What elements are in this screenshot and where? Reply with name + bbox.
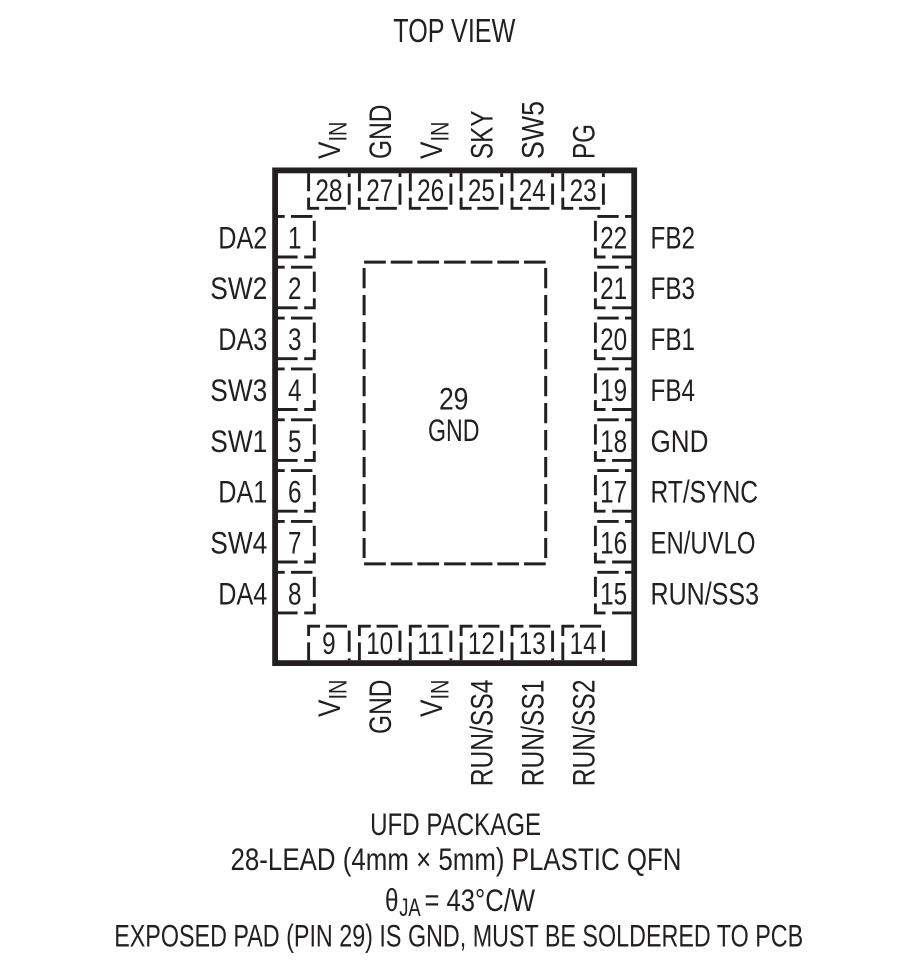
svg-text:SW2: SW2 (210, 270, 267, 306)
svg-text:13: 13 (519, 625, 546, 661)
svg-text:12: 12 (468, 625, 495, 661)
svg-text:SW1: SW1 (210, 423, 267, 459)
svg-text:14: 14 (570, 625, 597, 661)
svg-text:UFD PACKAGE: UFD PACKAGE (370, 806, 541, 842)
svg-text:SW4: SW4 (210, 524, 267, 560)
svg-text:27: 27 (366, 172, 393, 208)
svg-text:24: 24 (519, 172, 546, 208)
svg-text:EN/UVLO: EN/UVLO (651, 524, 756, 560)
svg-text:17: 17 (600, 474, 627, 510)
svg-text:TOP VIEW: TOP VIEW (393, 12, 516, 49)
svg-text:29: 29 (439, 380, 469, 416)
svg-text:25: 25 (468, 172, 495, 208)
svg-text:9: 9 (322, 625, 336, 661)
svg-text:SW3: SW3 (210, 372, 267, 408)
svg-text:28-LEAD (4mm × 5mm) PLASTIC QF: 28-LEAD (4mm × 5mm) PLASTIC QFN (231, 841, 682, 877)
svg-text:PG: PG (565, 124, 601, 159)
svg-text:28: 28 (315, 172, 342, 208)
svg-text:22: 22 (600, 219, 627, 255)
svg-text:DA3: DA3 (218, 321, 267, 357)
svg-text:IN: IN (325, 680, 353, 700)
svg-text:16: 16 (600, 524, 627, 560)
svg-text:1: 1 (288, 219, 302, 255)
svg-text:EXPOSED PAD (PIN 29) IS GND, M: EXPOSED PAD (PIN 29) IS GND, MUST BE SOL… (114, 917, 803, 953)
svg-text:4: 4 (288, 372, 302, 408)
svg-text:FB4: FB4 (651, 372, 696, 408)
svg-text:IN: IN (426, 122, 454, 142)
svg-text:GND: GND (362, 680, 398, 735)
svg-text:θ: θ (385, 882, 399, 918)
svg-text:26: 26 (417, 172, 444, 208)
svg-text:RUN/SS3: RUN/SS3 (651, 575, 760, 611)
svg-text:RUN/SS4: RUN/SS4 (464, 680, 500, 787)
svg-text:23: 23 (570, 172, 597, 208)
svg-text:FB3: FB3 (651, 270, 696, 306)
svg-text:DA1: DA1 (218, 474, 267, 510)
svg-text:GND: GND (362, 105, 398, 160)
svg-text:= 43°C/W: = 43°C/W (425, 882, 536, 918)
svg-text:IN: IN (426, 680, 454, 700)
svg-text:RUN/SS1: RUN/SS1 (515, 680, 551, 787)
svg-text:10: 10 (366, 625, 393, 661)
svg-text:V: V (413, 700, 449, 718)
svg-text:V: V (413, 142, 449, 160)
svg-text:SW5: SW5 (515, 101, 551, 159)
svg-text:DA4: DA4 (218, 575, 267, 611)
svg-text:RUN/SS2: RUN/SS2 (565, 680, 601, 787)
svg-text:21: 21 (600, 270, 627, 306)
svg-text:FB2: FB2 (651, 219, 696, 255)
svg-text:3: 3 (288, 321, 302, 357)
svg-text:15: 15 (600, 575, 627, 611)
svg-text:DA2: DA2 (218, 219, 267, 255)
svg-text:20: 20 (600, 321, 627, 357)
svg-text:RT/SYNC: RT/SYNC (651, 474, 759, 510)
svg-text:GND: GND (651, 423, 709, 459)
svg-text:18: 18 (600, 423, 627, 459)
svg-text:V: V (311, 700, 347, 718)
svg-text:FB1: FB1 (651, 321, 696, 357)
svg-text:19: 19 (600, 372, 627, 408)
svg-text:11: 11 (417, 625, 444, 661)
svg-text:8: 8 (288, 575, 302, 611)
svg-text:IN: IN (325, 122, 353, 142)
svg-text:GND: GND (428, 412, 480, 448)
svg-text:V: V (311, 142, 347, 160)
svg-text:6: 6 (288, 474, 302, 510)
svg-text:5: 5 (288, 423, 302, 459)
svg-text:7: 7 (288, 524, 302, 560)
svg-text:2: 2 (288, 270, 302, 306)
svg-text:SKY: SKY (464, 111, 500, 160)
